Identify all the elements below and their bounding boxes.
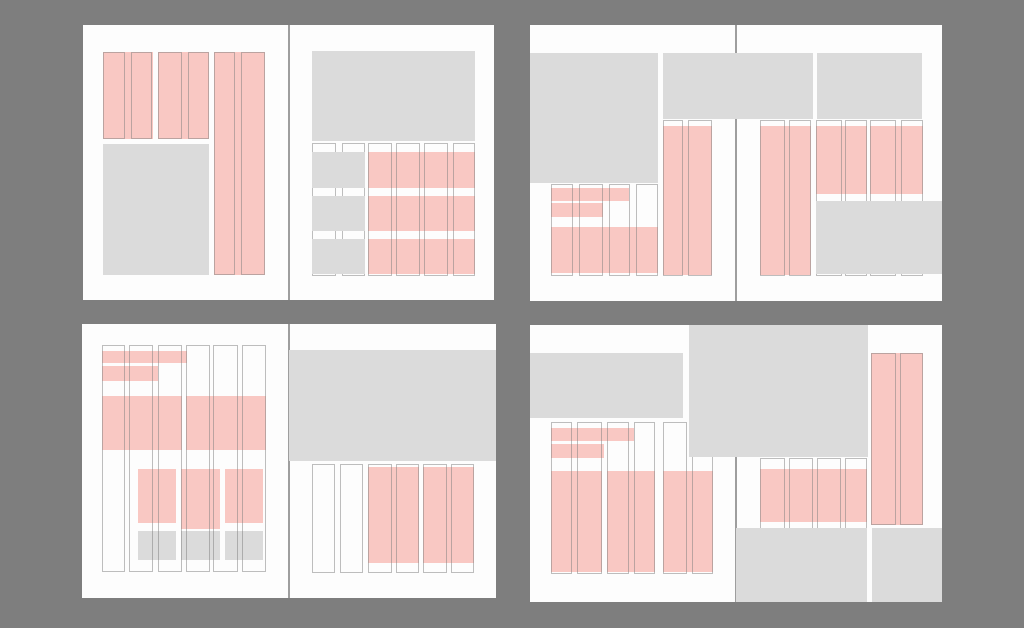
grid-column-guide [129, 345, 153, 572]
grid-column-guide [609, 184, 630, 277]
grid-column-guide [368, 143, 391, 276]
grid-column-guide [551, 184, 573, 277]
grid-column-guide [688, 120, 711, 276]
grid-column-guide [396, 143, 420, 276]
grid-column-guide [186, 345, 210, 572]
image-placeholder-block [312, 51, 475, 141]
grid-column-guide [663, 422, 687, 574]
spread-top-left-fold-line [288, 25, 290, 300]
image-placeholder-block [736, 528, 867, 602]
grid-column-guide [551, 422, 572, 574]
image-placeholder-block [103, 144, 209, 275]
grid-column-guide [451, 464, 474, 573]
grid-column-guide [214, 52, 236, 275]
grid-column-guide [423, 464, 446, 573]
grid-column-guide [636, 184, 658, 277]
image-placeholder-block [312, 239, 365, 274]
image-placeholder-block [816, 201, 942, 274]
grid-column-guide [188, 52, 209, 140]
grid-column-guide [607, 422, 630, 574]
spread-top-left [83, 25, 494, 300]
grid-column-guide [453, 143, 475, 276]
image-placeholder-block [530, 353, 683, 419]
grid-column-guide [577, 422, 602, 574]
grid-column-guide [900, 353, 923, 525]
grid-column-guide [131, 52, 152, 140]
grid-column-guide [789, 120, 811, 276]
image-placeholder-block [289, 350, 497, 461]
spread-bottom-left [82, 324, 496, 598]
grid-column-guide [663, 120, 683, 276]
grid-column-guide [312, 464, 335, 573]
image-placeholder-block [872, 528, 943, 602]
grid-column-guide [242, 345, 266, 572]
grid-column-guide [871, 353, 896, 525]
canvas-background [0, 0, 1024, 628]
grid-column-guide [340, 464, 363, 573]
spread-top-right [530, 25, 942, 301]
grid-column-guide [158, 52, 182, 140]
spread-bottom-right [530, 325, 942, 602]
grid-column-guide [579, 184, 602, 277]
grid-column-guide [241, 52, 265, 275]
image-placeholder-block [817, 53, 923, 120]
image-placeholder-block [530, 53, 658, 184]
image-placeholder-block [312, 196, 365, 231]
grid-column-guide [158, 345, 182, 572]
grid-column-guide [368, 464, 391, 573]
grid-column-guide [634, 422, 655, 574]
grid-column-guide [213, 345, 237, 572]
grid-column-guide [760, 120, 785, 276]
grid-column-guide [103, 52, 125, 140]
grid-column-guide [102, 345, 125, 572]
image-placeholder-block [689, 325, 868, 457]
grid-column-guide [396, 464, 419, 573]
image-placeholder-block [312, 152, 365, 188]
image-placeholder-block [663, 53, 813, 120]
grid-column-guide [424, 143, 448, 276]
